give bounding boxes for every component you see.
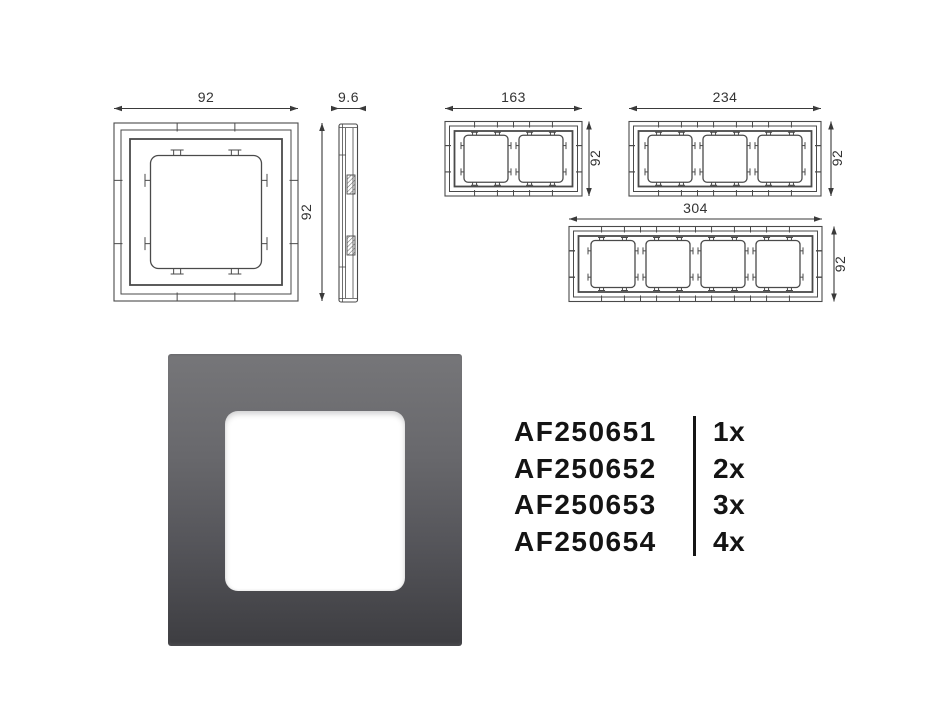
- frame-3gang-width-dimension-label: 234: [713, 89, 738, 105]
- frame-4gang-height-dimension-label: 92: [832, 256, 848, 273]
- front-width-dimension-label: 92: [198, 89, 215, 105]
- part-qty: 4x: [713, 528, 794, 556]
- side-view-drawing: [339, 124, 358, 302]
- frame-3gang-height-dimension-label: 92: [829, 150, 845, 167]
- part-row: AF250653 3x: [514, 487, 794, 524]
- part-sku: AF250652: [514, 455, 713, 483]
- part-row: AF250654 4x: [514, 524, 794, 561]
- product-photo: [168, 354, 462, 646]
- frame-2gang-width-dimension-label: 163: [501, 89, 526, 105]
- front-height-dimension-label: 92: [298, 204, 314, 221]
- part-sku: AF250651: [514, 418, 713, 446]
- part-qty: 2x: [713, 455, 794, 483]
- front-view-drawing: [114, 123, 299, 302]
- frame-2gang-height-dimension-label: 92: [587, 150, 603, 167]
- part-qty: 3x: [713, 491, 794, 519]
- part-row: AF250652 2x: [514, 451, 794, 488]
- frame-4gang-drawing: [569, 226, 823, 302]
- product-photo-opening: [225, 411, 405, 591]
- part-qty: 1x: [713, 418, 794, 446]
- frame-3gang-drawing: [629, 121, 822, 197]
- technical-drawings: 92 92 9.6 163 92 234 92 304 92: [0, 0, 925, 720]
- side-depth-dimension-label: 9.6: [338, 89, 359, 105]
- frame-4gang-width-dimension-label: 304: [683, 200, 708, 216]
- part-sku: AF250653: [514, 491, 713, 519]
- part-number-list: AF250651 1x AF250652 2x AF250653 3x AF25…: [514, 414, 794, 560]
- part-row: AF250651 1x: [514, 414, 794, 451]
- part-list-divider: [693, 416, 696, 556]
- frame-2gang-drawing: [445, 121, 583, 197]
- part-sku: AF250654: [514, 528, 713, 556]
- spec-sheet: 92 92 9.6 163 92 234 92 304 92 AF250651 …: [0, 0, 925, 720]
